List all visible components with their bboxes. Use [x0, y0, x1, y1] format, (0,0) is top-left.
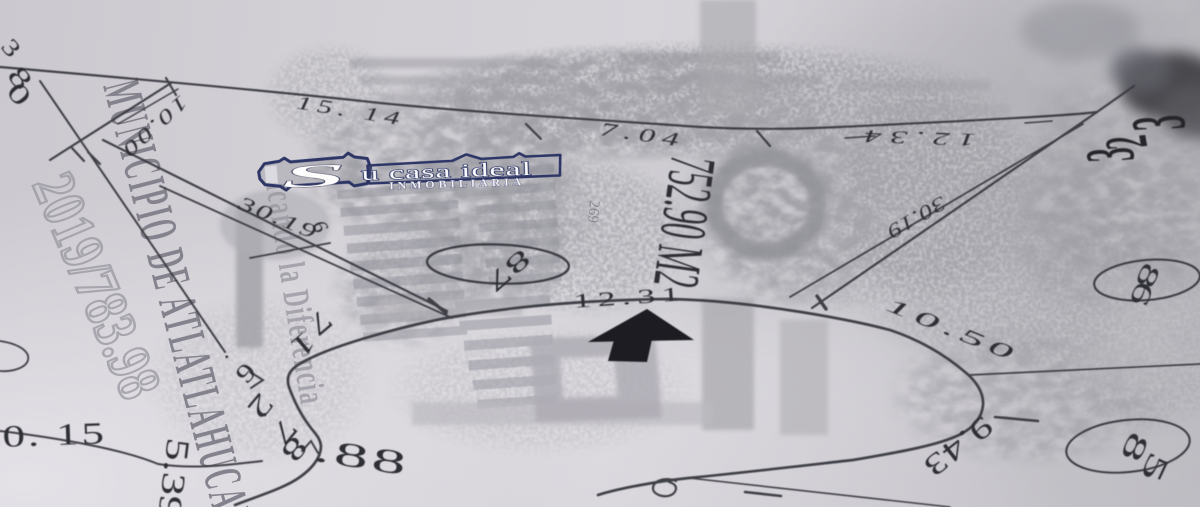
- svg-text:.88: .88: [311, 430, 413, 483]
- svg-text:12.34: 12.34: [856, 126, 976, 150]
- svg-text:5.39: 5.39: [151, 436, 198, 507]
- svg-text:269: 269: [584, 200, 602, 224]
- svg-text:3: 3: [0, 34, 26, 63]
- svg-text:0. 15: 0. 15: [2, 417, 108, 454]
- svg-text:S: S: [280, 156, 347, 195]
